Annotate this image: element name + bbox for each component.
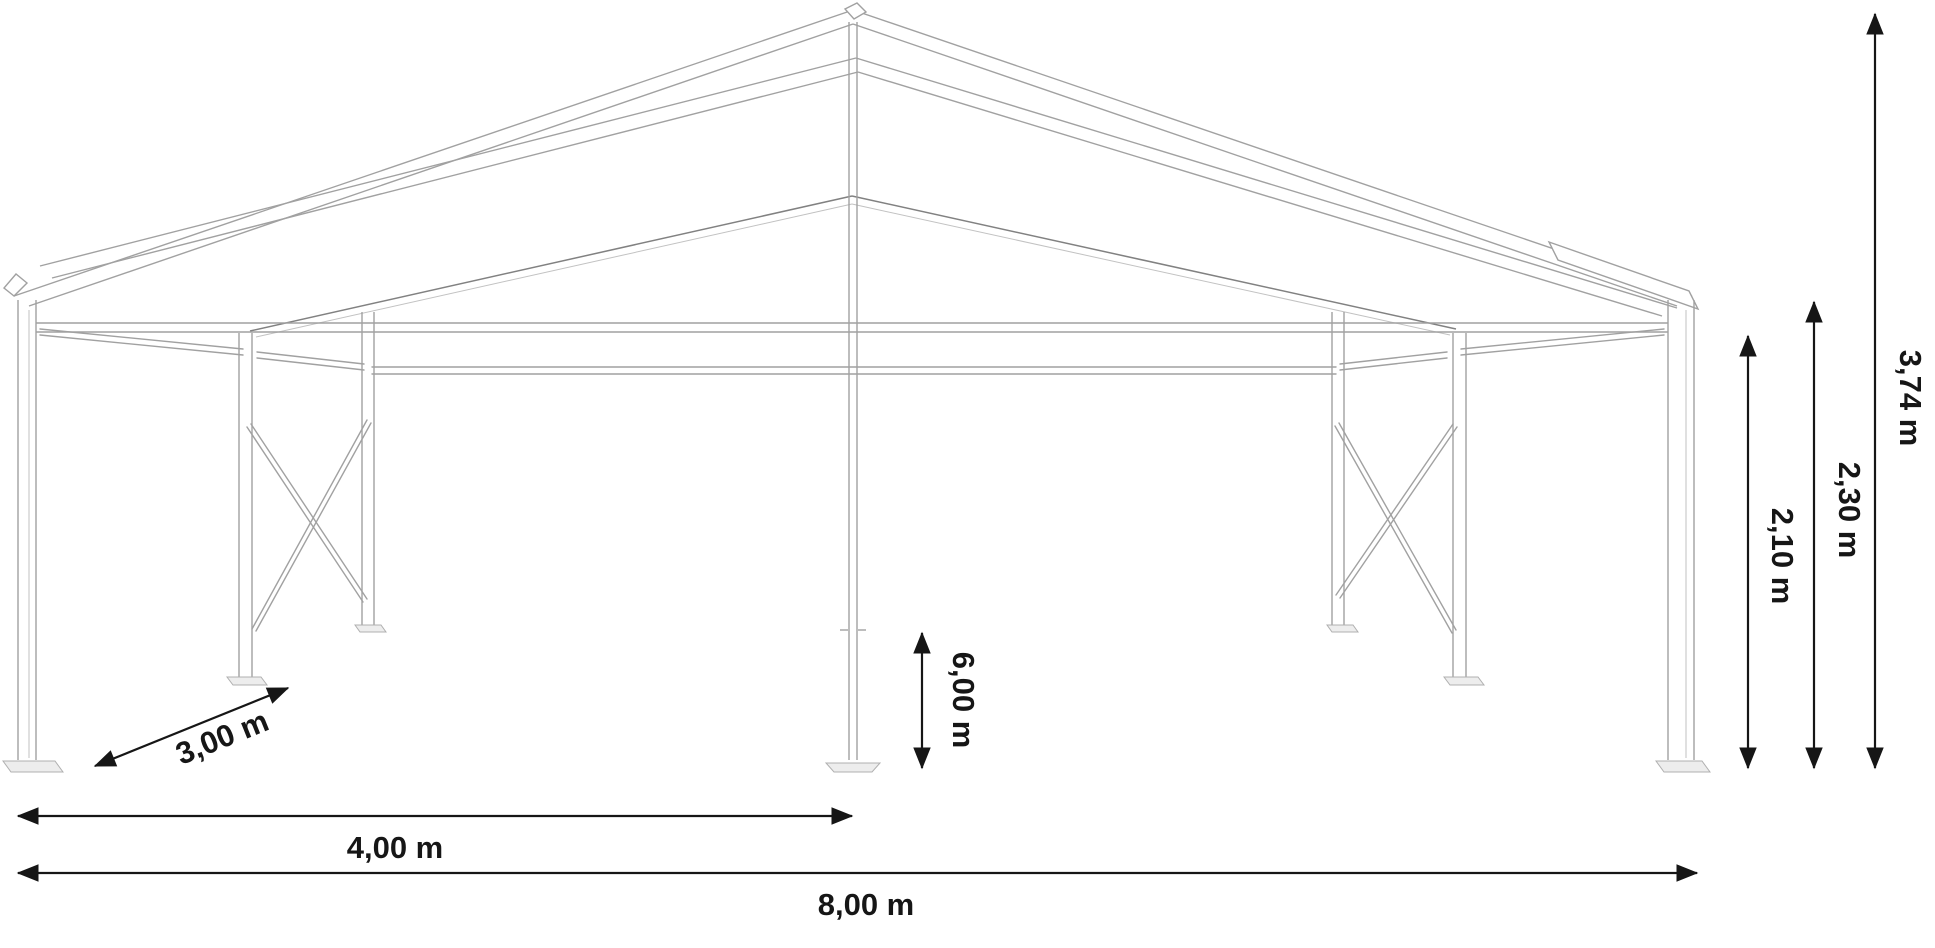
dimension-label-leg-height: 2,10 m: [1765, 508, 1800, 605]
base-plate-mid-left: [227, 677, 267, 685]
arrowhead: [18, 808, 38, 824]
arrowhead: [914, 748, 930, 768]
base-plate-front-right: [1656, 761, 1710, 772]
arrowhead: [1867, 748, 1883, 768]
dimension-label-ridge-height: 3,74 m: [1893, 350, 1928, 447]
mid-portal-rafters: [250, 196, 1456, 331]
dimension-label-length: 6,00 m: [946, 652, 981, 749]
dimension-bay: 3,00 m: [95, 688, 288, 772]
base-plate-front-left: [3, 761, 63, 772]
dimension-leg-height: 2,10 m: [1740, 336, 1800, 768]
base-plate-back-left: [355, 625, 386, 632]
dimension-width: 8,00 m: [18, 865, 1697, 922]
base-plate-mid-right: [1444, 677, 1484, 685]
arrowhead: [1806, 302, 1822, 322]
arrowhead: [1677, 865, 1697, 881]
base-plate-back-right: [1327, 625, 1358, 632]
dimension-eave-height: 2,30 m: [1806, 302, 1867, 768]
arrowhead: [18, 865, 38, 881]
front-gable-rafters: [4, 3, 1698, 309]
back-eave-beam: [372, 367, 1336, 374]
arrowhead: [832, 808, 852, 824]
tent-frame: [3, 3, 1710, 772]
arrowhead: [1867, 14, 1883, 34]
arrowhead: [914, 633, 930, 653]
dimension-label-width: 8,00 m: [818, 887, 915, 922]
arrowhead: [267, 688, 289, 703]
mid-portal-rafters-inner: [256, 204, 1450, 337]
wall-rails: [40, 329, 1664, 370]
centre-pole: [840, 22, 866, 760]
dimension-length: 6,00 m: [914, 633, 981, 768]
arrowhead: [1740, 336, 1756, 356]
tent-frame-diagram: 3,00 m 4,00 m 8,00 m 6,00 m: [0, 0, 1935, 948]
dimension-half-width: 4,00 m: [18, 808, 852, 865]
dimension-annotations: 3,00 m 4,00 m 8,00 m 6,00 m: [18, 14, 1928, 922]
arrowhead: [95, 751, 117, 766]
dimension-ridge-height: 3,74 m: [1867, 14, 1928, 768]
arrowhead: [1806, 748, 1822, 768]
dimension-label-bay: 3,00 m: [171, 703, 274, 772]
arrowhead: [1740, 748, 1756, 768]
back-gable-rafters: [40, 58, 1677, 316]
cross-bracing: [247, 420, 1457, 633]
base-plate-centre-pole: [826, 763, 880, 772]
dimension-label-eave-height: 2,30 m: [1832, 462, 1867, 559]
dimension-label-half-width: 4,00 m: [347, 830, 444, 865]
